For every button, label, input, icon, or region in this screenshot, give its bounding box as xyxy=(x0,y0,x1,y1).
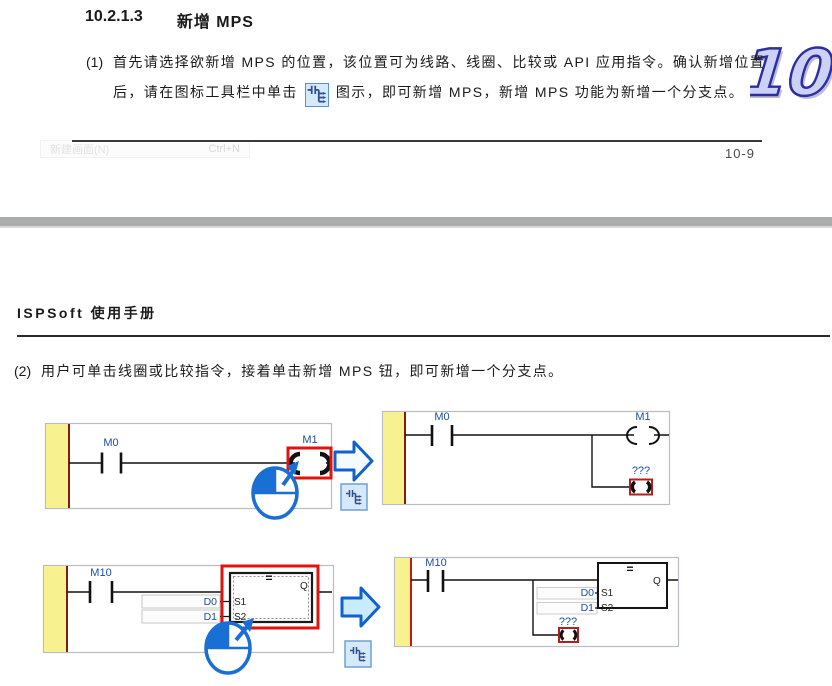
ghost-menu-item: 新建画面(N) Ctrl+N xyxy=(40,140,250,158)
footer-rule xyxy=(72,140,762,142)
new-branch-label: ??? xyxy=(632,465,650,477)
network-margin xyxy=(395,558,410,646)
step-1-marker: (1) xyxy=(86,47,113,107)
block-pin2-label: S2 xyxy=(601,603,614,614)
ladder-diagram-coil-before: M0 M1 xyxy=(40,415,340,533)
step-2-paragraph: (2) 用户可单击线圈或比较指令，接着单击新增 MPS 钮，即可新增一个分支点。 xyxy=(14,356,814,386)
coil-label: M1 xyxy=(302,434,317,446)
network-margin xyxy=(383,412,404,504)
manual-page: 10.2.1.3 新增 MPS 10 10 (1) 首先请选择欲新增 MPS 的… xyxy=(0,0,832,686)
transition-group-2 xyxy=(331,583,387,675)
step-1-line2-before: 后，请在图标工具栏中单击 xyxy=(113,84,298,100)
page-number: 10-9 xyxy=(650,146,755,161)
block-operator-label: = xyxy=(265,571,272,585)
step-1-line1: 首先请选择欲新增 MPS 的位置，该位置可为线路、线圈、比较或 API 应用指令… xyxy=(113,54,765,70)
new-branch-coil xyxy=(559,628,578,642)
contact-symbol xyxy=(432,425,452,446)
new-branch-coil xyxy=(630,480,652,495)
function-block: = Q S1 S2 xyxy=(598,562,667,614)
block-pin1-label: S1 xyxy=(234,597,247,608)
mps-icon xyxy=(307,84,327,104)
operand-boxes: D0 D1 xyxy=(537,587,601,614)
block-output-label: Q xyxy=(300,581,308,592)
step-2-text: 用户可单击线圈或比较指令，接着单击新增 MPS 钮，即可新增一个分支点。 xyxy=(41,356,564,386)
section-title: 新增 MPS xyxy=(177,8,254,32)
section-heading: 10.2.1.3 新增 MPS xyxy=(85,8,254,32)
ladder-diagram-block-before: M10 D0 D1 = Q S1 S2 xyxy=(38,556,338,686)
section-number: 10.2.1.3 xyxy=(85,8,143,32)
page-break-divider xyxy=(0,217,832,228)
operand-2-label: D1 xyxy=(581,602,595,614)
step-1-text: 首先请选择欲新增 MPS 的位置，该位置可为线路、线圈、比较或 API 应用指令… xyxy=(113,47,765,107)
ghost-menu-label: 新建画面(N) xyxy=(50,141,109,157)
network-margin xyxy=(46,424,68,508)
operand-1-label: D0 xyxy=(581,587,595,599)
ladder-diagram-block-after: M10 D0 D1 = Q S1 S2 ??? xyxy=(390,548,682,670)
block-pin1-label: S1 xyxy=(601,588,614,599)
step-2-marker: (2) xyxy=(14,356,41,386)
operand-boxes: D0 D1 xyxy=(142,595,230,623)
network-border xyxy=(383,412,670,505)
block-operator-label: = xyxy=(626,562,633,576)
contact-label: M10 xyxy=(90,567,111,579)
block-arrow-right-icon xyxy=(335,442,372,480)
contact-symbol xyxy=(102,453,121,474)
step-1-line2-after: 图示，即可新增 MPS，新增 MPS 功能为新增一个分支点。 xyxy=(336,84,744,100)
mps-toolbar-icon xyxy=(305,83,329,107)
block-output-label: Q xyxy=(653,576,661,587)
manual-title-header: ISPSoft 使用手册 xyxy=(17,303,157,323)
contact-label: M0 xyxy=(434,411,449,423)
step-1-paragraph: (1) 首先请选择欲新增 MPS 的位置，该位置可为线路、线圈、比较或 API … xyxy=(86,47,786,107)
contact-symbol xyxy=(90,581,112,603)
transition-group-1 xyxy=(331,437,383,517)
contact-symbol xyxy=(428,570,443,592)
function-block: = Q S1 S2 xyxy=(230,571,312,623)
network-margin xyxy=(44,566,66,652)
contact-label: M0 xyxy=(103,437,118,449)
coil-label: M1 xyxy=(635,411,650,423)
mps-toolbar-button xyxy=(341,484,367,510)
operand-2-label: D1 xyxy=(204,611,218,623)
header-rule xyxy=(17,335,830,337)
contact-label: M10 xyxy=(425,557,446,569)
block-arrow-right-icon xyxy=(342,588,379,626)
ladder-diagram-coil-after: M0 M1 ??? xyxy=(378,403,674,509)
operand-1-label: D0 xyxy=(204,596,218,608)
new-branch-label: ??? xyxy=(559,616,577,628)
ghost-menu-shortcut: Ctrl+N xyxy=(209,143,240,155)
mps-toolbar-button xyxy=(345,641,371,667)
